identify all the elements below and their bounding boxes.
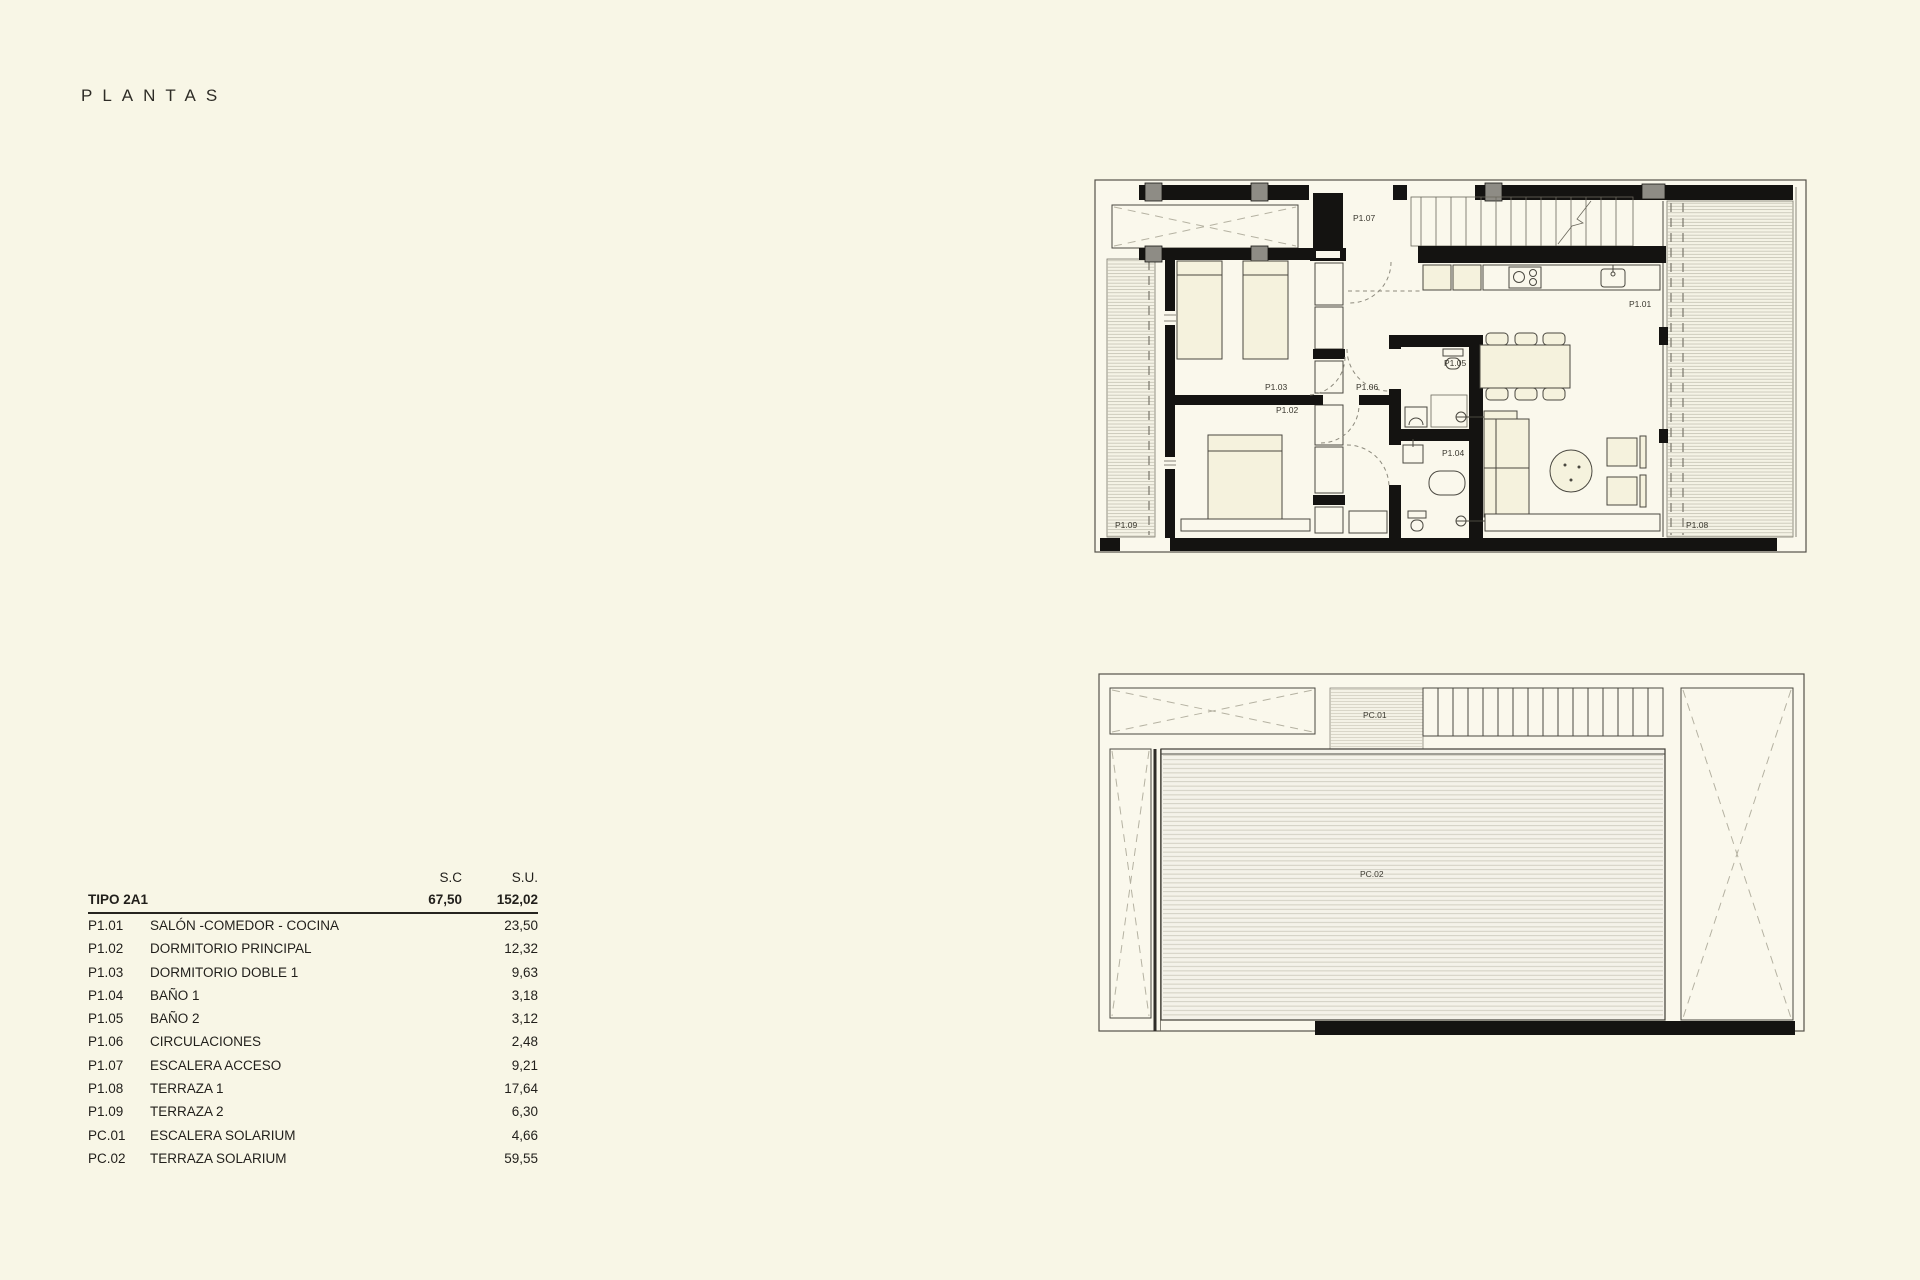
table-row: P1.06CIRCULACIONES2,48 xyxy=(88,1030,538,1053)
col-header-su: S.U. xyxy=(462,866,538,889)
terrace-2-area xyxy=(1107,259,1155,537)
wardrobe-crossed-box xyxy=(1112,205,1298,248)
pillar-box xyxy=(1310,248,1346,261)
solarium-deck xyxy=(1161,749,1665,1020)
table-row: PC.01ESCALERA SOLARIUM4,66 xyxy=(88,1124,538,1147)
table-row: P1.07ESCALERA ACCESO9,21 xyxy=(88,1054,538,1077)
left-facade-wall xyxy=(1164,257,1176,538)
landing-wall xyxy=(1313,193,1343,248)
room-label-pc01: PC.01 xyxy=(1363,710,1387,720)
wall-segment xyxy=(1659,429,1668,443)
room-label-p101: P1.01 xyxy=(1629,299,1651,309)
bedroom-divider-wall xyxy=(1175,395,1323,405)
type-label: TIPO 2A1 xyxy=(88,888,150,911)
floor-plan-svg: P1.07 P1.01 P1.05 P1.06 P1.03 P1.02 P1.0… xyxy=(1093,177,1810,555)
floor-plan-drawing: P1.07 P1.01 P1.05 P1.06 P1.03 P1.02 P1.0… xyxy=(1093,177,1810,555)
table-header-row: S.C S.U. xyxy=(88,868,538,888)
room-label-p108: P1.08 xyxy=(1686,520,1708,530)
room-label-p106: P1.06 xyxy=(1356,382,1378,392)
round-table xyxy=(1550,450,1592,492)
hall-wall xyxy=(1359,395,1389,405)
table-row: P1.05BAÑO 23,12 xyxy=(88,1007,538,1030)
room-label-p104: P1.04 xyxy=(1442,448,1464,458)
type-sc-value: 67,50 xyxy=(400,888,462,911)
armchair xyxy=(1607,436,1646,468)
table-row: P1.09TERRAZA 26,30 xyxy=(88,1100,538,1123)
col-header-sc: S.C xyxy=(400,866,462,889)
table-row: P1.04BAÑO 13,18 xyxy=(88,984,538,1007)
table-row: P1.08TERRAZA 117,64 xyxy=(88,1077,538,1100)
crossed-box-tall xyxy=(1681,688,1793,1020)
table-type-row: TIPO 2A1 67,50 152,02 xyxy=(88,888,538,914)
table-row: P1.02DORMITORIO PRINCIPAL12,32 xyxy=(88,937,538,960)
room-label-p102: P1.02 xyxy=(1276,405,1298,415)
terrace-1-area xyxy=(1667,187,1796,537)
room-label-p105: P1.05 xyxy=(1444,358,1466,368)
solarium-plan-drawing: PC.01 PC.02 xyxy=(1093,671,1810,1037)
room-label-p103: P1.03 xyxy=(1265,382,1287,392)
hall-cabinet xyxy=(1349,511,1387,533)
sideboard xyxy=(1485,514,1660,531)
bottom-wall xyxy=(1315,1021,1795,1035)
wall-segment xyxy=(1659,327,1668,345)
table-row: PC.02TERRAZA SOLARIUM59,55 xyxy=(88,1147,538,1170)
crossed-box xyxy=(1110,688,1315,734)
armchair xyxy=(1607,475,1646,507)
room-label-p109: P1.09 xyxy=(1115,520,1137,530)
page-title: PLANTAS xyxy=(81,86,227,106)
table-row: P1.01SALÓN -COMEDOR - COCINA23,50 xyxy=(88,914,538,937)
kitchen-back-wall xyxy=(1418,246,1666,263)
bottom-wall xyxy=(1100,538,1777,551)
solarium-plan-svg: PC.01 PC.02 xyxy=(1093,671,1810,1037)
dining-set xyxy=(1480,333,1570,400)
table-row: P1.03DORMITORIO DOBLE 19,63 xyxy=(88,961,538,984)
room-label-p107: P1.07 xyxy=(1353,213,1375,223)
plan-sheet: { "page": { "title": "PLANTAS", "backgro… xyxy=(0,0,1920,1280)
area-table: S.C S.U. TIPO 2A1 67,50 152,02 P1.01SALÓ… xyxy=(88,868,538,1170)
room-label-pc02: PC.02 xyxy=(1360,869,1384,879)
crossed-strip xyxy=(1110,749,1151,1018)
type-su-value: 152,02 xyxy=(462,888,538,911)
